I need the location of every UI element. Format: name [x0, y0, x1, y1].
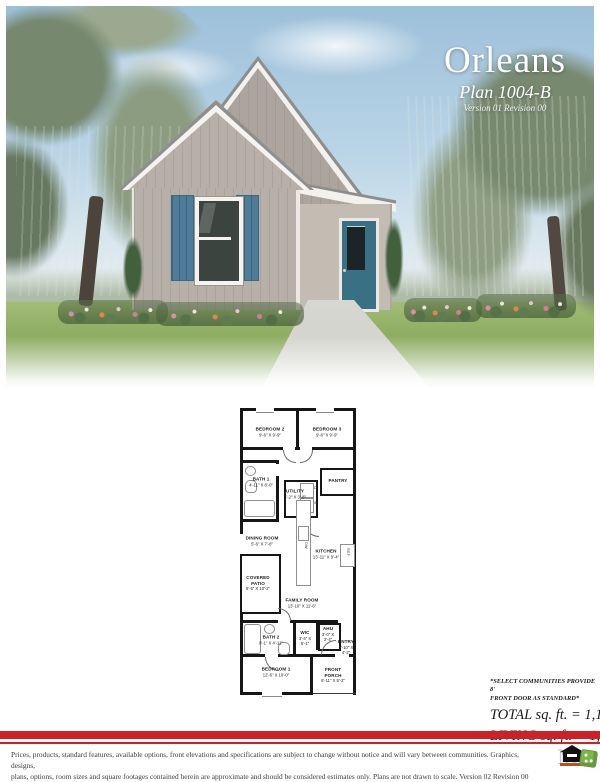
dice-icon — [579, 749, 598, 768]
room-label-porch: FRONT PORCH 6'-11" X 5'-2" — [316, 667, 350, 684]
wall — [240, 460, 279, 463]
wall — [310, 657, 313, 695]
floor-plan: DW REF D W BEDROOM 2 9'-6" X 9'-9" BEDRO… — [238, 404, 358, 704]
builder-logo: M — [548, 744, 596, 774]
window-marker — [262, 692, 282, 699]
wall — [240, 447, 356, 450]
kitchen-sink-icon — [298, 526, 309, 541]
shrub-left-corner — [120, 228, 146, 310]
sink-icon — [264, 624, 275, 634]
window-marker — [256, 408, 274, 415]
room-label-patio: COVERED PATIO 5'-5" X 10'-2" — [245, 575, 271, 592]
door-opening — [276, 464, 279, 476]
room-label-utility: UTILITY 4'-2" X 3'-8" — [280, 489, 310, 500]
plan-title-block: Orleans Plan 1004-B Version 01 Revision … — [415, 42, 594, 115]
room-label-bedroom3: BEDROOM 3 9'-6" X 9'-9" — [303, 427, 351, 438]
room-label-family: FAMILY ROOM 13'-10" X 11'-6" — [274, 598, 330, 609]
flower-bed-right — [404, 298, 482, 322]
equal-sign-icon — [567, 752, 577, 759]
washer-label: W — [314, 501, 318, 505]
disclaimer-text: Prices, products, standard features, ava… — [11, 749, 541, 782]
flower-bed-far-right — [476, 294, 576, 318]
dryer-label: D — [314, 486, 317, 490]
image-fade — [6, 336, 594, 388]
bathtub-icon — [244, 500, 275, 517]
window-marker — [316, 408, 334, 415]
wall — [240, 519, 279, 522]
room-label-bath1: BATH 1 4'-11" X 8'-0" — [248, 477, 274, 488]
select-communities-note: *SELECT COMMUNITIES PROVIDE 8' FRONT DOO… — [490, 678, 600, 703]
window-shutter-left — [171, 195, 194, 281]
red-divider-bar — [0, 731, 600, 739]
plan-number: Plan 1004-B — [415, 81, 594, 104]
red-divider-line — [0, 742, 600, 744]
room-label-pantry: PANTRY — [321, 478, 355, 484]
room-label-ahu: AHU 3'-0" X 2'-4" — [319, 626, 337, 642]
shrub-right-corner — [382, 208, 406, 308]
porch-edge — [313, 693, 356, 694]
sink-icon — [245, 466, 256, 476]
room-label-kitchen: KITCHEN 13'-11" X 9'-4" — [301, 549, 351, 560]
cloud-shape — [246, 16, 426, 76]
plan-name: Orleans — [415, 42, 594, 81]
wall — [296, 408, 299, 450]
wall — [320, 468, 356, 470]
room-label-dining: DINING ROOM 5'-6" X 7'-8" — [245, 536, 279, 547]
house-rendering: Orleans Plan 1004-B Version 01 Revision … — [6, 6, 594, 388]
door-arc — [300, 450, 313, 463]
room-label-wic: WIC 3'-4" X 5'-1" — [295, 630, 315, 646]
corner-trim — [296, 190, 300, 310]
front-window — [195, 197, 243, 285]
wall — [320, 494, 356, 496]
window-marker — [240, 534, 243, 554]
room-label-entry: ENTRY 3'-10" X 4'-2" — [336, 639, 356, 655]
plan-version: Version 01 Revision 00 — [415, 103, 594, 115]
total-sqft: TOTAL sq. ft. = 1,108 — [490, 706, 600, 724]
front-door — [339, 218, 379, 312]
room-label-bedroom2: BEDROOM 2 9'-6" X 9'-9" — [246, 427, 294, 438]
flower-bed-left — [58, 300, 168, 324]
room-label-bath2: BATH 2 8'-1" X 4'-11" — [254, 635, 288, 646]
door-arc — [278, 608, 291, 621]
flower-bed-center — [156, 302, 304, 326]
room-label-bedroom1: BEDROOM 1 12'-6" X 10'-0" — [250, 667, 302, 678]
door-arc — [283, 450, 296, 463]
